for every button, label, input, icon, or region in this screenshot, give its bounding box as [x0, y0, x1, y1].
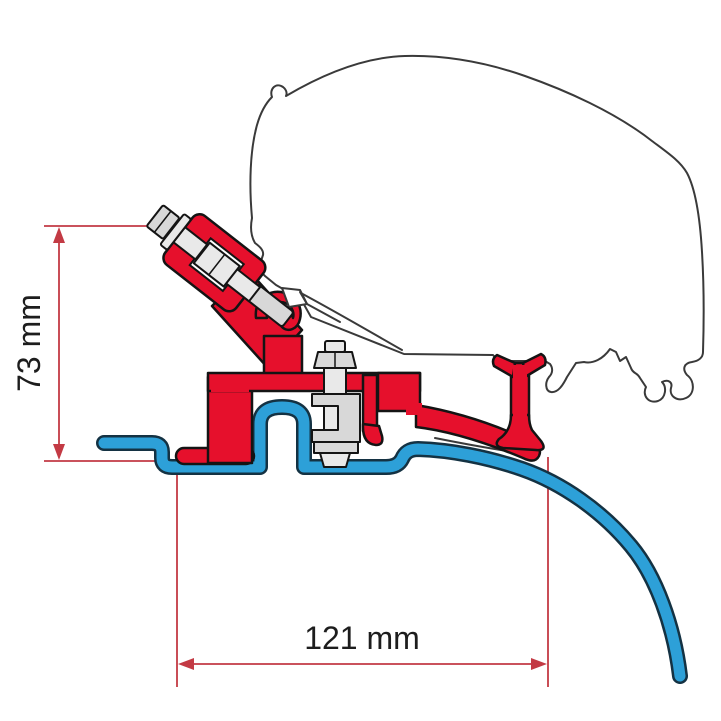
- case-body-outline: [250, 56, 703, 402]
- bracket-right-leg: [363, 375, 377, 431]
- bracket-joint: [406, 403, 422, 415]
- arrow-left-icon: [178, 658, 194, 670]
- bracket-joint: [211, 376, 249, 392]
- lower-nut: [320, 453, 350, 467]
- bracket-right-leg-curl: [363, 424, 382, 445]
- bolt-shaft-upper: [324, 368, 346, 396]
- bracket-joint: [380, 375, 410, 389]
- bracket-joint: [266, 339, 300, 353]
- diagram-canvas: 73 mm 121 mm: [0, 0, 721, 721]
- t-support-wing-left: [493, 355, 515, 377]
- arrow-down-icon: [53, 444, 65, 460]
- dimension-label-121mm: 121 mm: [304, 620, 420, 656]
- t-support-joint: [513, 365, 527, 379]
- bracket-joint: [266, 375, 300, 389]
- bolt-tip: [325, 341, 345, 352]
- arrow-up-icon: [53, 227, 65, 243]
- t-support-joint: [513, 410, 527, 422]
- arrow-right-icon: [531, 658, 547, 670]
- front-clamp-bolt-assembly: [135, 192, 306, 345]
- case-lip-line: [299, 292, 402, 350]
- bracket-joint: [211, 450, 249, 461]
- dimension-label-73mm: 73 mm: [11, 294, 47, 392]
- washer: [314, 442, 358, 453]
- awning-adapter-diagram: 73 mm 121 mm: [0, 0, 721, 721]
- dimension-horizontal-121mm: 121 mm: [177, 457, 548, 687]
- center-clamp-bolt-assembly: [312, 341, 360, 467]
- t-support-joint: [510, 437, 534, 446]
